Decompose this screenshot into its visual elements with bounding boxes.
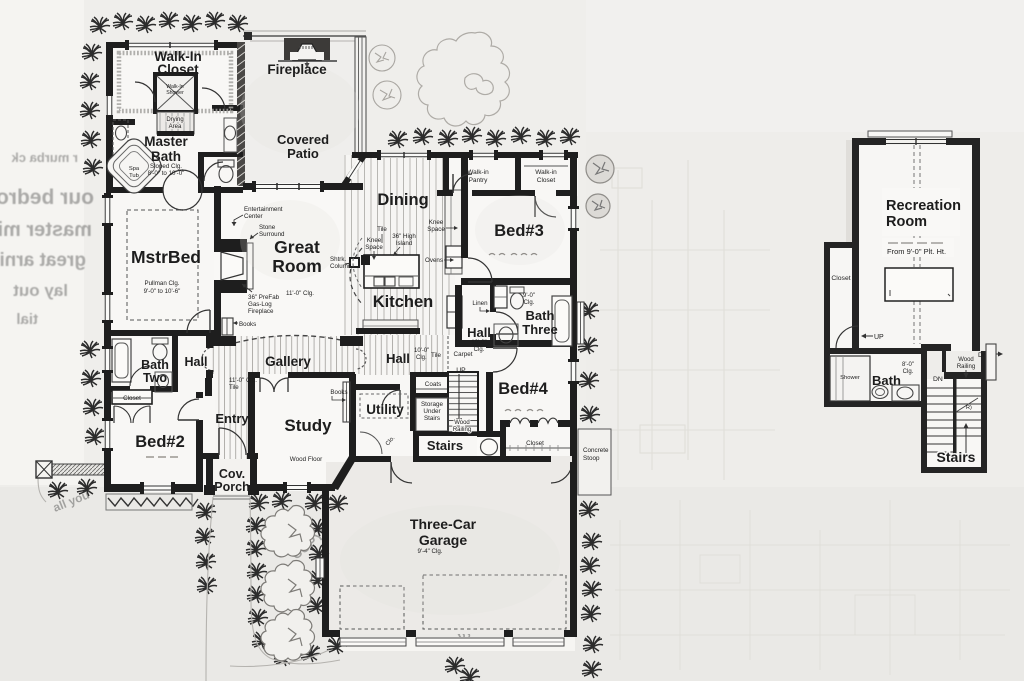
svg-text:Area: Area <box>169 124 182 130</box>
svg-text:Utility: Utility <box>366 402 404 417</box>
svg-text:Hall: Hall <box>185 355 208 369</box>
svg-text:Island: Island <box>396 240 413 247</box>
svg-text:Walk-in: Walk-in <box>467 169 489 176</box>
svg-text:r murba ck: r murba ck <box>11 150 78 165</box>
svg-text:Three-Car: Three-Car <box>410 516 477 532</box>
svg-text:Closet: Closet <box>831 275 850 282</box>
svg-text:Entry: Entry <box>215 411 249 426</box>
svg-text:Recreation: Recreation <box>886 198 961 214</box>
svg-text:Entertainment: Entertainment <box>244 206 283 213</box>
svg-text:Bed#3: Bed#3 <box>494 222 544 240</box>
svg-text:Ovens: Ovens <box>425 257 443 264</box>
svg-text:Linen: Linen <box>472 300 488 307</box>
svg-text:Three: Three <box>522 322 557 337</box>
svg-text:9'-0": 9'-0" <box>523 293 535 299</box>
svg-text:Closet: Closet <box>157 62 199 77</box>
svg-text:Garage: Garage <box>419 532 467 548</box>
svg-text:Gas-Log: Gas-Log <box>248 301 272 308</box>
svg-text:Closet: Closet <box>526 440 544 447</box>
svg-text:Clg.: Clg. <box>416 355 427 361</box>
svg-text:Sloped Clg.: Sloped Clg. <box>150 163 182 170</box>
svg-text:Books: Books <box>330 389 347 396</box>
svg-text:Shower: Shower <box>840 375 860 381</box>
svg-text:R): R) <box>966 405 972 411</box>
svg-text:Hall: Hall <box>467 325 491 340</box>
svg-text:Wood: Wood <box>958 357 974 363</box>
svg-text:Tub: Tub <box>129 173 139 179</box>
svg-text:Covered: Covered <box>277 132 329 147</box>
svg-text:Closet: Closet <box>123 395 141 402</box>
svg-text:Shower: Shower <box>166 90 184 96</box>
svg-text:Kitchen: Kitchen <box>373 293 434 311</box>
svg-text:Storage: Storage <box>421 401 444 408</box>
svg-text:Cov.: Cov. <box>219 467 245 481</box>
svg-text:Stone: Stone <box>259 224 276 231</box>
svg-text:UP: UP <box>874 334 884 341</box>
svg-text:8'-0" to 10'-0": 8'-0" to 10'-0" <box>148 170 185 177</box>
svg-text:Column: Column <box>330 263 352 270</box>
svg-text:11'-0" Clg.: 11'-0" Clg. <box>286 290 314 297</box>
svg-text:Tile: Tile <box>377 226 387 233</box>
svg-text:Stairs: Stairs <box>427 438 463 453</box>
svg-text:Stairs: Stairs <box>424 415 440 422</box>
svg-text:tial: tial <box>16 311 38 328</box>
svg-text:MstrBed: MstrBed <box>131 247 201 267</box>
svg-text:Tile: Tile <box>431 352 441 359</box>
svg-text:Dining: Dining <box>377 191 428 209</box>
svg-text:master min: master min <box>0 219 92 241</box>
svg-text:Coats: Coats <box>425 381 441 388</box>
svg-text:9'-0" to 10'-6": 9'-0" to 10'-6" <box>144 288 181 295</box>
svg-text:Master: Master <box>144 134 188 149</box>
svg-text:10'-0": 10'-0" <box>471 340 486 346</box>
svg-text:36" High: 36" High <box>392 233 416 240</box>
svg-text:Gallery: Gallery <box>265 354 311 369</box>
svg-text:Bed#2: Bed#2 <box>135 433 185 451</box>
svg-text:Bed#4: Bed#4 <box>498 380 548 398</box>
svg-text:Porch: Porch <box>214 480 249 494</box>
svg-text:Room: Room <box>272 256 322 276</box>
svg-text:Wood: Wood <box>454 420 470 426</box>
svg-text:great arni: great arni <box>0 250 86 271</box>
svg-text:Tile: Tile <box>229 384 239 391</box>
svg-text:Knee: Knee <box>367 237 382 244</box>
svg-text:Great: Great <box>274 237 320 257</box>
svg-text:Drying: Drying <box>166 117 183 123</box>
svg-text:Concrete: Concrete <box>583 447 609 454</box>
svg-text:Patio: Patio <box>287 146 319 161</box>
svg-text:8'-0": 8'-0" <box>902 362 914 368</box>
svg-text:Bath: Bath <box>526 308 555 323</box>
svg-text:Space: Space <box>427 226 445 233</box>
svg-text:Surround: Surround <box>259 231 285 238</box>
svg-text:Room: Room <box>886 214 927 230</box>
svg-text:Railing: Railing <box>453 427 471 433</box>
svg-text:Shtrk.: Shtrk. <box>330 256 346 263</box>
svg-text:Closet: Closet <box>537 177 556 184</box>
svg-text:Knee: Knee <box>429 219 444 226</box>
svg-text:Fireplace: Fireplace <box>267 62 327 77</box>
svg-text:our bedroom: our bedroom <box>0 186 94 209</box>
svg-text:10'-0": 10'-0" <box>414 348 429 354</box>
svg-text:lay out: lay out <box>13 281 68 300</box>
svg-text:Walk-in: Walk-in <box>535 169 557 176</box>
svg-text:Under: Under <box>423 408 440 415</box>
svg-text:Space: Space <box>365 244 383 251</box>
svg-text:9'-4" Clg.: 9'-4" Clg. <box>417 548 442 555</box>
svg-text:UP: UP <box>456 367 466 374</box>
svg-text:Clg.: Clg. <box>903 369 914 375</box>
svg-text:11'-0" Clg.: 11'-0" Clg. <box>229 377 257 384</box>
svg-text:36" PreFab: 36" PreFab <box>248 294 280 301</box>
svg-text:Stairs: Stairs <box>937 449 976 465</box>
svg-text:Pantry: Pantry <box>469 177 489 184</box>
svg-text:Study: Study <box>284 416 332 435</box>
svg-text:Pullman Clg.: Pullman Clg. <box>144 280 179 287</box>
svg-text:Carpet: Carpet <box>454 351 473 358</box>
svg-text:Clg.: Clg. <box>474 347 485 353</box>
svg-text:Two: Two <box>143 371 167 385</box>
svg-text:DN: DN <box>933 376 943 383</box>
svg-text:Spa: Spa <box>129 166 140 172</box>
svg-text:Wood Floor: Wood Floor <box>290 456 322 463</box>
svg-text:Hall: Hall <box>386 351 410 366</box>
svg-text:Center: Center <box>244 213 263 220</box>
svg-text:Bath: Bath <box>141 358 169 372</box>
svg-text:Clg.: Clg. <box>524 300 535 306</box>
svg-text:Stoop: Stoop <box>583 455 600 462</box>
svg-text:Railing: Railing <box>957 364 975 370</box>
svg-text:Books: Books <box>239 321 256 328</box>
svg-text:Bath: Bath <box>151 149 181 164</box>
svg-text:Fireplace: Fireplace <box>248 308 274 315</box>
svg-text:From 9'-0" Plt. Ht.: From 9'-0" Plt. Ht. <box>887 247 946 256</box>
